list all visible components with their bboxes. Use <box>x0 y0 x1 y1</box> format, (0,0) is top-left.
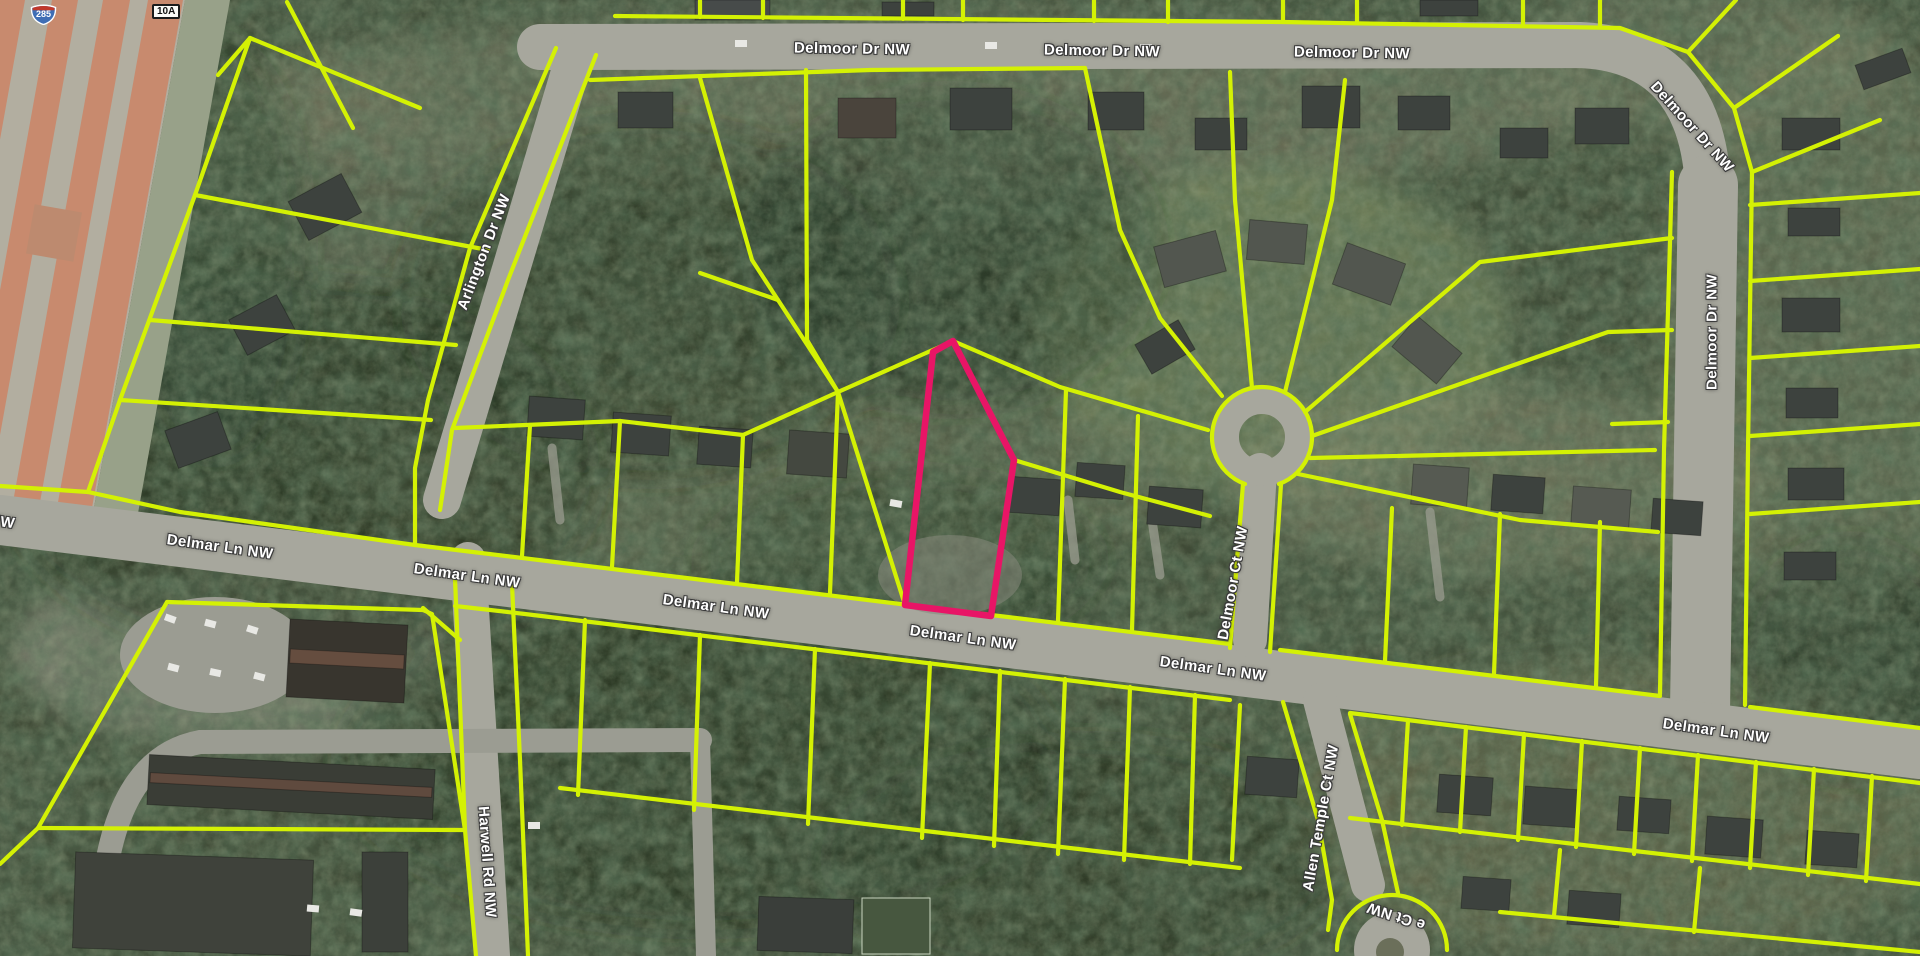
aerial-map <box>0 0 1920 956</box>
exit-badge: 10A <box>152 4 180 19</box>
tennis-court <box>862 898 930 954</box>
map-canvas[interactable]: Delmoor Dr NWDelmoor Dr NWDelmoor Dr NWD… <box>0 0 1920 956</box>
parcel-boundary[interactable] <box>1612 422 1668 424</box>
parcel-boundary[interactable] <box>38 828 465 830</box>
roadside-building <box>26 204 82 262</box>
shield-number: 285 <box>30 9 57 19</box>
interstate-shield: 285 <box>30 2 57 25</box>
